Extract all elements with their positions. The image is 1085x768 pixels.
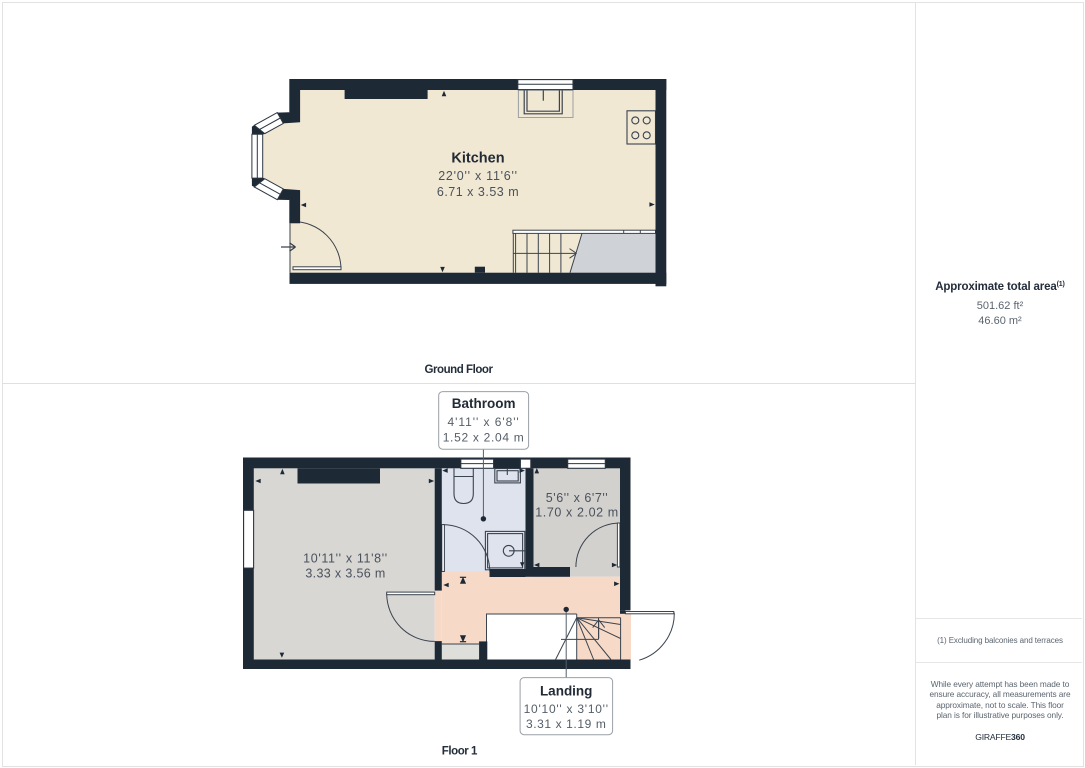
svg-text:3.31 x 1.19 m: 3.31 x 1.19 m — [526, 717, 607, 731]
svg-text:Bathroom: Bathroom — [452, 396, 516, 411]
svg-text:3.33 x 3.56 m: 3.33 x 3.56 m — [305, 567, 385, 581]
svg-text:4'11'' x 6'8'': 4'11'' x 6'8'' — [447, 415, 519, 429]
svg-text:Kitchen: Kitchen — [451, 151, 504, 167]
svg-text:6.71 x 3.53 m: 6.71 x 3.53 m — [437, 185, 519, 199]
svg-text:Ground Floor: Ground Floor — [424, 364, 493, 376]
svg-text:1.70 x 2.02 m: 1.70 x 2.02 m — [535, 506, 619, 520]
svg-text:22'0'' x 11'6'': 22'0'' x 11'6'' — [438, 169, 518, 183]
svg-text:10'11'' x 11'8'': 10'11'' x 11'8'' — [303, 552, 388, 566]
svg-text:Floor 1: Floor 1 — [442, 746, 478, 758]
svg-text:10'10'' x 3'10'': 10'10'' x 3'10'' — [524, 702, 609, 716]
svg-text:1.52 x 2.04 m: 1.52 x 2.04 m — [443, 430, 525, 444]
svg-text:Landing: Landing — [540, 684, 593, 699]
svg-text:5'6'' x 6'7'': 5'6'' x 6'7'' — [546, 491, 608, 505]
